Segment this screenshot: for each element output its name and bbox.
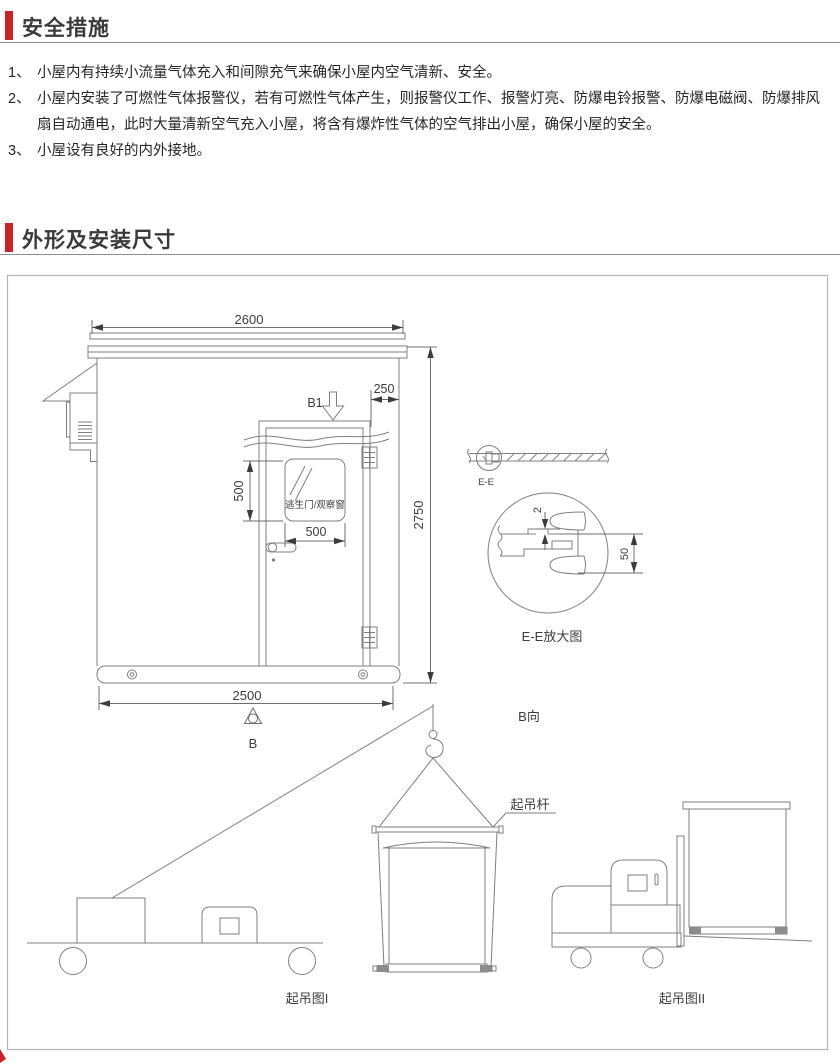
dimension-drawing: 2600 2750 250 500 500 2500 B1 B 逃生门/观察窗 [0, 0, 840, 1063]
door-hinge-top [362, 447, 377, 468]
crane-cable [112, 706, 433, 898]
dim-panel-overlap-text: 50 [619, 548, 631, 560]
label-view-b1: B1 [307, 396, 322, 410]
b-view-marker-icon [245, 708, 262, 724]
escape-door [259, 421, 377, 666]
b1-direction-arrow-icon [323, 392, 344, 420]
lifting-bar [372, 826, 503, 833]
crane-truck [27, 898, 323, 975]
base-skid [97, 666, 400, 683]
dim-window-height-text: 500 [232, 481, 246, 502]
label-lifting-fig-1: 起吊图I [286, 991, 329, 1006]
cabinet-roof [88, 333, 407, 358]
suspended-shelter [373, 842, 496, 972]
section-strip [468, 446, 609, 471]
dim-panel-gap-text: 2 [532, 507, 544, 513]
label-section-detail: E-E放大图 [522, 629, 583, 644]
label-section-mark: E-E [478, 477, 494, 488]
dim-window-width-text: 500 [306, 525, 327, 539]
drawing-frame [8, 276, 828, 1050]
section-e-e [468, 446, 643, 614]
section-detail-view [488, 493, 608, 613]
lifting-figure-2 [552, 802, 812, 968]
door-hinge-bottom [362, 627, 377, 648]
label-door-window: 逃生门/观察窗 [285, 499, 345, 511]
dim-base-width-text: 2500 [233, 688, 262, 703]
dim-roof-width-text: 2600 [235, 312, 264, 327]
dim-overall-height-text: 2750 [411, 501, 426, 530]
label-lifting-bar: 起吊杆 [510, 797, 549, 812]
crane-hook-icon [426, 704, 443, 757]
label-lifting-fig-2: 起吊图II [659, 991, 705, 1006]
manual-page: { "page": { "accent_color": "#cc2128", "… [0, 0, 840, 1063]
corner-ribbon-decoration [0, 1049, 6, 1063]
observation-window [285, 459, 345, 521]
lifting-figure-1 [27, 704, 556, 975]
label-view-b: B [249, 736, 258, 751]
forklift-shelter [683, 802, 790, 934]
dim-window-height [243, 461, 283, 521]
cabinet-dimensions [92, 320, 437, 724]
lifting-bar-leader [493, 813, 556, 827]
dim-door-to-corner-text: 250 [374, 382, 395, 396]
detail-bubble [477, 446, 502, 471]
forklift [552, 836, 812, 968]
label-view-b-dir: B向 [518, 709, 540, 724]
side-vent [43, 363, 97, 462]
cabinet-front-view [43, 333, 407, 683]
